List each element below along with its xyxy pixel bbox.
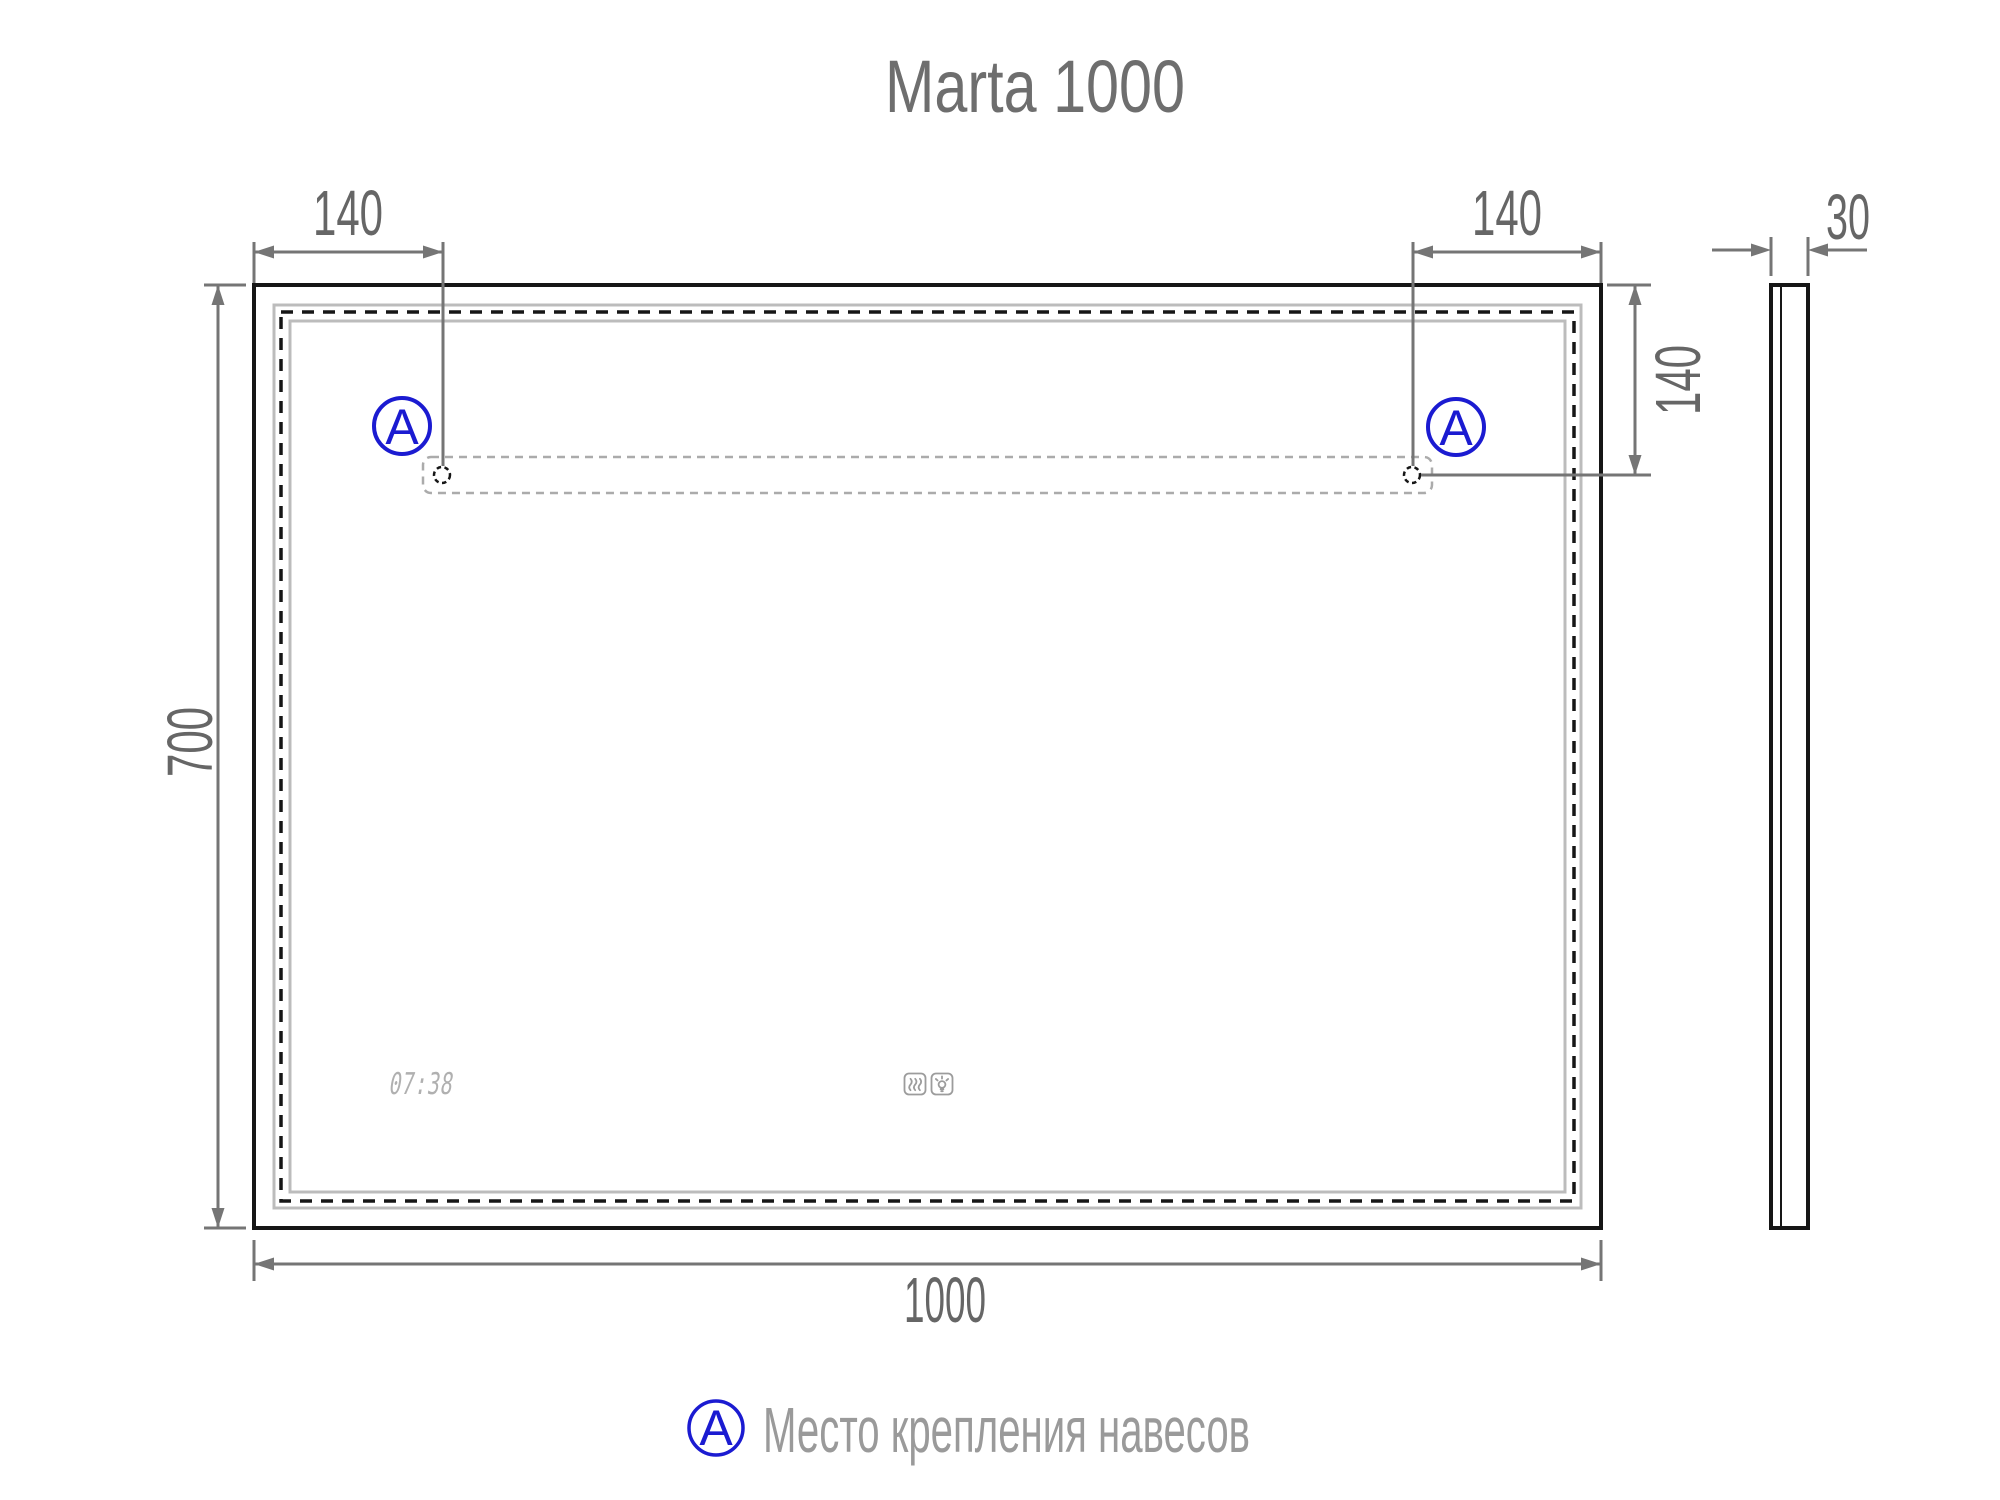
dimension-value: 1000 xyxy=(904,1264,986,1336)
mounting-rail-dashed-outline xyxy=(423,457,1432,493)
marker-letter: A xyxy=(385,399,419,455)
dimension-thickness-30: 30 xyxy=(1712,181,1870,276)
arrowhead-left xyxy=(254,1258,274,1271)
arrowhead-right xyxy=(1751,244,1771,257)
arrowhead-left xyxy=(254,246,274,259)
technical-drawing-sheet: Marta 1000 A A 07:38 xyxy=(0,0,2000,1500)
legend-text: Место крепления навесов xyxy=(763,1394,1250,1466)
dimension-value: 30 xyxy=(1826,181,1870,253)
led-band-inner-line xyxy=(290,321,1565,1192)
mount-marker-right: A xyxy=(1428,399,1484,456)
arrowhead-left xyxy=(1808,244,1828,257)
drawing-title: Marta 1000 xyxy=(885,45,1185,128)
legend-marker-letter: A xyxy=(699,1400,733,1456)
dimension-value: 700 xyxy=(154,707,226,777)
arrowhead-right xyxy=(1581,246,1601,259)
clock-display: 07:38 xyxy=(387,1067,457,1102)
dimension-value: 140 xyxy=(313,177,383,249)
arrowhead-down xyxy=(212,1208,225,1228)
clock-time: 07:38 xyxy=(387,1067,457,1102)
mounting-hole-left xyxy=(434,467,450,483)
mounting-hole-right xyxy=(1404,467,1420,483)
dimension-width-1000: 1000 xyxy=(254,1240,1601,1336)
led-band-outer-line xyxy=(274,305,1581,1208)
dimension-value: 140 xyxy=(1642,345,1714,415)
mirror-outline xyxy=(254,285,1601,1228)
side-profile-outline xyxy=(1771,285,1808,1228)
arrowhead-right xyxy=(1581,1258,1601,1271)
light-icon xyxy=(932,1074,953,1095)
dimension-value: 140 xyxy=(1472,177,1542,249)
touch-controls xyxy=(905,1074,953,1095)
drawing-canvas: Marta 1000 A A 07:38 xyxy=(0,0,2000,1500)
mount-marker-left: A xyxy=(374,398,430,455)
arrowhead-down xyxy=(1629,455,1642,475)
led-strip-dashed-line xyxy=(281,312,1574,1201)
marker-letter: A xyxy=(1439,400,1473,456)
arrowhead-left xyxy=(1413,246,1433,259)
side-view xyxy=(1771,285,1808,1228)
demister-icon xyxy=(905,1074,926,1095)
arrowhead-up xyxy=(212,285,225,305)
dimension-height-700: 700 xyxy=(154,285,246,1228)
legend: A Место крепления навесов xyxy=(689,1394,1250,1466)
front-view: A A 07:38 xyxy=(254,285,1601,1228)
arrowhead-right xyxy=(423,246,443,259)
arrowhead-up xyxy=(1629,285,1642,305)
